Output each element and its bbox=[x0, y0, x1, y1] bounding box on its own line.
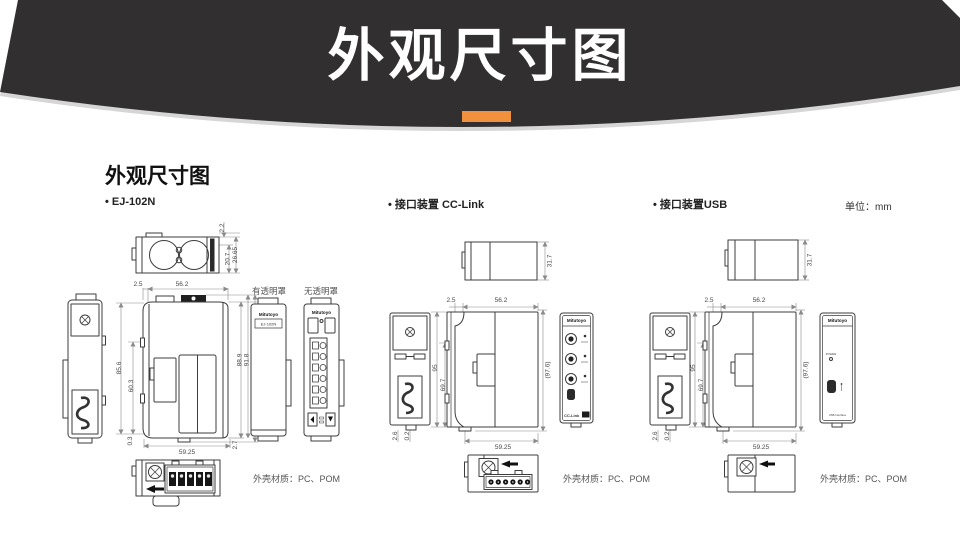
dim-label: 88.9 bbox=[237, 353, 244, 366]
dim-label: 26.65 bbox=[232, 246, 239, 263]
cclink-logo-label: CC-Link bbox=[564, 413, 580, 418]
dim-label: 59.25 bbox=[753, 444, 770, 451]
usb-face-view bbox=[820, 313, 855, 427]
dim-label: 56.2 bbox=[495, 297, 508, 304]
dim-label: 31.7 bbox=[547, 254, 554, 267]
usb-bottom-view bbox=[725, 455, 796, 492]
dim-label: 69.7 bbox=[440, 378, 447, 391]
usb-top-view bbox=[725, 240, 798, 280]
dim-label: 2.6 bbox=[652, 431, 659, 440]
dim-label: 95 bbox=[690, 364, 697, 372]
cclink-front-view bbox=[445, 312, 538, 431]
model-label: EJ-102N bbox=[261, 322, 277, 327]
dim-label: 0.2 bbox=[404, 431, 411, 440]
dim-label: 60.3 bbox=[128, 379, 135, 392]
banner-title: 外观尺寸图 bbox=[0, 28, 960, 85]
section-title: 外观尺寸图 bbox=[105, 160, 210, 190]
usb-port-icon bbox=[827, 380, 836, 393]
cover-with-label: 有透明罩 bbox=[252, 286, 287, 296]
dim-label: 0.3 bbox=[127, 436, 134, 445]
power-label: POWER bbox=[826, 352, 837, 356]
dim-label: 56.2 bbox=[176, 281, 189, 288]
usb-side-view bbox=[650, 313, 690, 430]
brand-label: Mitutoyo bbox=[312, 310, 331, 315]
header-banner: 外观尺寸图 bbox=[0, 0, 960, 140]
dim-label: 91.8 bbox=[244, 353, 251, 366]
material-note-ej102n: 外壳材质：PC、POM bbox=[253, 472, 340, 485]
material-note-cclink: 外壳材质：PC、POM bbox=[563, 472, 650, 485]
ej102n-top-view bbox=[132, 233, 219, 273]
ej102n-drawing: 2.2 20.7 26.65 2.5 56.2 85.6 60.3 0.3 59… bbox=[60, 208, 350, 508]
dim-label: 20.7 bbox=[225, 252, 232, 265]
ej102n-side-view-open bbox=[304, 298, 344, 441]
usb-interface-label: USB Interface bbox=[829, 413, 847, 417]
cclink-top-view bbox=[462, 242, 537, 280]
dim-label: (97.6) bbox=[803, 362, 810, 379]
material-note-usb: 外壳材质：PC、POM bbox=[820, 472, 907, 485]
usb-front-view bbox=[703, 312, 796, 431]
ej102n-bottom-view bbox=[132, 460, 220, 506]
brand-label: Mitutoyo bbox=[259, 312, 278, 317]
dim-label: 2.7 bbox=[232, 440, 239, 449]
usb-port-icon bbox=[567, 389, 575, 400]
dim-label: 2.5 bbox=[704, 297, 713, 304]
dim-label: 0.2 bbox=[664, 431, 671, 440]
ej102n-side-view-left bbox=[63, 294, 106, 443]
cclink-face-view bbox=[560, 313, 593, 427]
dim-label: (97.6) bbox=[545, 362, 552, 379]
cclink-bottom-view bbox=[465, 455, 539, 492]
ej102n-front-view bbox=[141, 295, 229, 442]
brand-label: Mitutoyo bbox=[828, 318, 847, 323]
dim-label: 85.6 bbox=[116, 361, 123, 374]
dim-label: 69.7 bbox=[698, 378, 705, 391]
cclink-side-view bbox=[390, 313, 430, 430]
accent-bar bbox=[462, 111, 511, 122]
ej102n-side-view-covered bbox=[251, 298, 291, 441]
dim-label: 2.5 bbox=[446, 297, 455, 304]
brand-label: Mitutoyo bbox=[567, 318, 586, 323]
dim-label: 59.25 bbox=[179, 449, 196, 456]
cclink-drawing: 31.7 2.5 56.2 95 69.7 (97.6) 2.6 0.2 59.… bbox=[385, 208, 620, 508]
dim-label: 2.6 bbox=[392, 431, 399, 440]
usb-drawing: 31.7 2.5 56.2 95 69.7 (97.6) 2.6 0.2 59.… bbox=[645, 208, 900, 508]
dim-label: 2.5 bbox=[133, 281, 142, 288]
dim-label: 59.25 bbox=[495, 444, 512, 451]
dim-label: 95 bbox=[432, 364, 439, 372]
dim-label: 2.2 bbox=[219, 223, 226, 232]
dim-label: 31.7 bbox=[807, 253, 814, 266]
terminal-block bbox=[169, 472, 212, 486]
cover-without-label: 无透明罩 bbox=[304, 286, 339, 296]
product-label-ej102n: • EJ-102N bbox=[105, 196, 155, 208]
dim-label: 56.2 bbox=[753, 297, 766, 304]
